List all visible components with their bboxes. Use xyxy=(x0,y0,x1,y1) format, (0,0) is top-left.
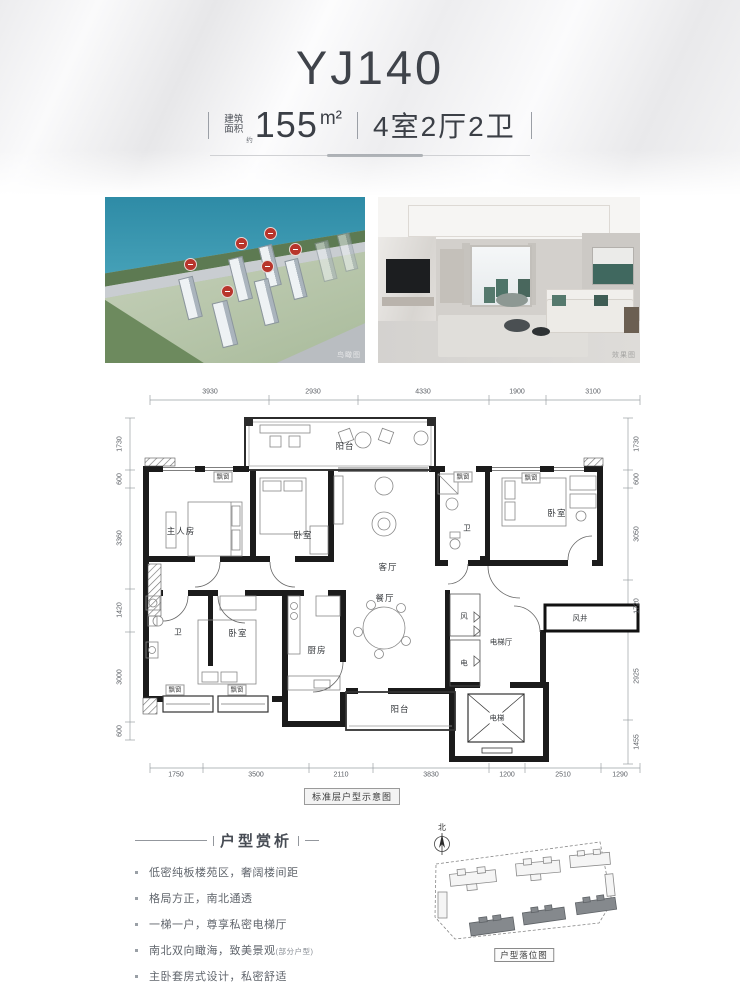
tv-cabinet xyxy=(382,297,434,306)
utility-closets xyxy=(450,594,480,686)
highlight-buildings xyxy=(469,893,617,936)
hatch-blocks xyxy=(143,458,636,714)
bay-window-label: 飘窗 xyxy=(454,471,473,482)
siteplan: 北 xyxy=(428,820,656,980)
dim-label: 600 xyxy=(117,473,124,485)
dim-label: 600 xyxy=(634,473,641,485)
dining-chair xyxy=(484,287,495,303)
cushion xyxy=(594,295,608,306)
north-label: 北 xyxy=(438,822,446,833)
dim-label: 2110 xyxy=(333,772,348,779)
dim-label: 4330 xyxy=(415,389,431,396)
flyer-page: YJ140 建筑 面积 约 155 m² 4室2厅2卫 xyxy=(0,0,740,1001)
tv-screen xyxy=(386,259,430,293)
elevator-shaft xyxy=(468,694,524,753)
living-room-label: 客厅 xyxy=(378,561,397,573)
bullet-text: 主卧套房式设计，私密舒适 xyxy=(149,968,287,984)
page-title: YJ140 xyxy=(0,40,740,95)
bullet-text: 南北双向瞰海，致美景观 xyxy=(149,942,276,958)
area-label-line2: 面积 xyxy=(224,125,243,135)
bullet-text: 一梯一户，尊享私密电梯厅 xyxy=(149,916,287,932)
kitchen-label: 厨房 xyxy=(307,644,326,656)
dim-label: 1750 xyxy=(168,772,184,779)
bullet-text: 低密纯板楼苑区，奢阔楼间距 xyxy=(149,864,299,880)
wind-shaft-label: 风井 xyxy=(573,613,588,624)
bedroom-label: 卧室 xyxy=(293,529,312,541)
bullet-note: (部分户型) xyxy=(276,946,314,957)
analysis-bullet: 格局方正，南北通透 xyxy=(135,890,435,906)
wind-shaft-box xyxy=(545,605,638,631)
analysis-bullet: 主卧套房式设计，私密舒适 xyxy=(135,968,435,984)
bullet-dot-icon xyxy=(135,871,138,874)
aerial-caption: 鸟瞰图 xyxy=(337,350,361,360)
analysis-section: 户型赏析 低密纯板楼苑区，奢阔楼间距 格局方正，南北通透 一梯一户，尊享私密电梯… xyxy=(105,830,435,994)
shelf-cabinet xyxy=(440,249,464,303)
bay-window-label: 飘窗 xyxy=(166,684,185,695)
analysis-heading: 户型赏析 xyxy=(135,830,435,851)
floorplan-caption: 标准层户型示意图 xyxy=(304,788,400,805)
electric-closet-label: 电 xyxy=(459,658,469,669)
walls xyxy=(143,466,603,762)
bathroom-label: 卫 xyxy=(462,523,472,534)
floorplan: 3930 2930 4330 1900 3100 1750 3500 2110 … xyxy=(100,380,655,810)
bedroom-label: 卧室 xyxy=(547,507,566,519)
building-marker xyxy=(184,258,197,271)
dim-label: 1200 xyxy=(499,772,515,779)
dining-room-label: 餐厅 xyxy=(375,592,394,604)
interior-caption: 效果图 xyxy=(612,350,636,360)
coffee-table xyxy=(532,327,550,336)
siteplan-caption: 户型落位图 xyxy=(494,948,554,962)
building-marker xyxy=(289,243,302,256)
bay-window-label: 飘窗 xyxy=(228,684,247,695)
dim-label: 1290 xyxy=(612,772,628,779)
heading-line-right xyxy=(305,840,319,841)
bathroom-label: 卫 xyxy=(173,627,183,638)
header-rule-accent xyxy=(327,154,423,157)
bay-window-label: 飘窗 xyxy=(214,471,233,482)
area-value: 155 xyxy=(255,104,318,146)
area-label: 建筑 面积 xyxy=(224,115,243,136)
analysis-bullet: 一梯一户，尊享私密电梯厅 xyxy=(135,916,435,932)
dim-label: 3000 xyxy=(117,669,124,685)
header-rule xyxy=(210,155,530,156)
bullet-dot-icon xyxy=(135,975,138,978)
building-marker xyxy=(235,237,248,250)
furniture xyxy=(146,425,596,690)
dim-label: 1420 xyxy=(117,602,124,618)
analysis-bullet: 南北双向瞰海，致美景观 (部分户型) xyxy=(135,942,435,958)
analysis-title: 户型赏析 xyxy=(220,830,292,851)
heading-tick xyxy=(213,836,214,846)
balcony-top-label: 阳台 xyxy=(335,440,354,452)
balcony-bottom-label: 阳台 xyxy=(390,703,409,715)
coffee-table xyxy=(504,319,530,332)
dim-label: 3830 xyxy=(423,772,439,779)
elevator-label: 电梯 xyxy=(489,713,506,724)
dim-label: 2930 xyxy=(305,389,321,396)
photo-row: 鸟瞰图 效果图 xyxy=(105,197,640,363)
dim-label: 3930 xyxy=(202,389,218,396)
header-section: YJ140 建筑 面积 约 155 m² 4室2厅2卫 xyxy=(0,0,740,196)
divider-bar xyxy=(357,112,358,139)
divider-bar xyxy=(531,112,532,139)
bay-window-label: 飘窗 xyxy=(522,472,541,483)
heading-line-left xyxy=(135,840,207,841)
building-marker xyxy=(221,285,234,298)
side-table xyxy=(624,307,639,333)
bullet-dot-icon xyxy=(135,897,138,900)
wind-closet-label: 风 xyxy=(459,611,469,622)
building-marker xyxy=(264,227,277,240)
rooms-spec: 4室2厅2卫 xyxy=(373,105,516,145)
spec-row: 建筑 面积 约 155 m² 4室2厅2卫 xyxy=(0,104,740,146)
bay-windows xyxy=(163,696,268,712)
dining-table xyxy=(496,293,528,307)
bullet-dot-icon xyxy=(135,949,138,952)
divider-bar xyxy=(208,112,209,139)
area-unit: m² xyxy=(320,108,342,130)
building-marker xyxy=(261,260,274,273)
bullet-dot-icon xyxy=(135,923,138,926)
dim-label: 1730 xyxy=(117,436,124,452)
analysis-bullet: 低密纯板楼苑区，奢阔楼间距 xyxy=(135,864,435,880)
dim-label: 2510 xyxy=(555,772,571,779)
dim-label: 3050 xyxy=(634,526,641,542)
bullet-text: 格局方正，南北通透 xyxy=(149,890,253,906)
analysis-list: 低密纯板楼苑区，奢阔楼间距 格局方正，南北通透 一梯一户，尊享私密电梯厅 南北双… xyxy=(105,864,435,984)
ceiling-recess xyxy=(408,205,610,237)
dim-label: 600 xyxy=(117,725,124,737)
dim-label: 2925 xyxy=(634,668,641,684)
dim-label: 1455 xyxy=(634,734,641,750)
area-approx: 约 xyxy=(246,134,253,144)
bedroom-label: 卧室 xyxy=(228,627,247,639)
elevator-hall-label: 电梯厅 xyxy=(490,637,513,648)
interior-photo: 效果图 xyxy=(378,197,640,363)
art-frame xyxy=(592,247,634,285)
north-arrow-icon xyxy=(435,833,450,855)
cushion xyxy=(552,295,566,306)
dimension-lines xyxy=(125,395,640,773)
master-bedroom-label: 主人房 xyxy=(167,525,196,537)
aerial-photo: 鸟瞰图 xyxy=(105,197,365,363)
dim-label: 3360 xyxy=(117,530,124,546)
dim-label: 3500 xyxy=(248,772,264,779)
dim-label: 1730 xyxy=(634,436,641,452)
dim-label: 1900 xyxy=(509,389,525,396)
heading-tick xyxy=(298,836,299,846)
dim-label: 3100 xyxy=(585,389,601,396)
dim-label: 1720 xyxy=(634,598,641,614)
